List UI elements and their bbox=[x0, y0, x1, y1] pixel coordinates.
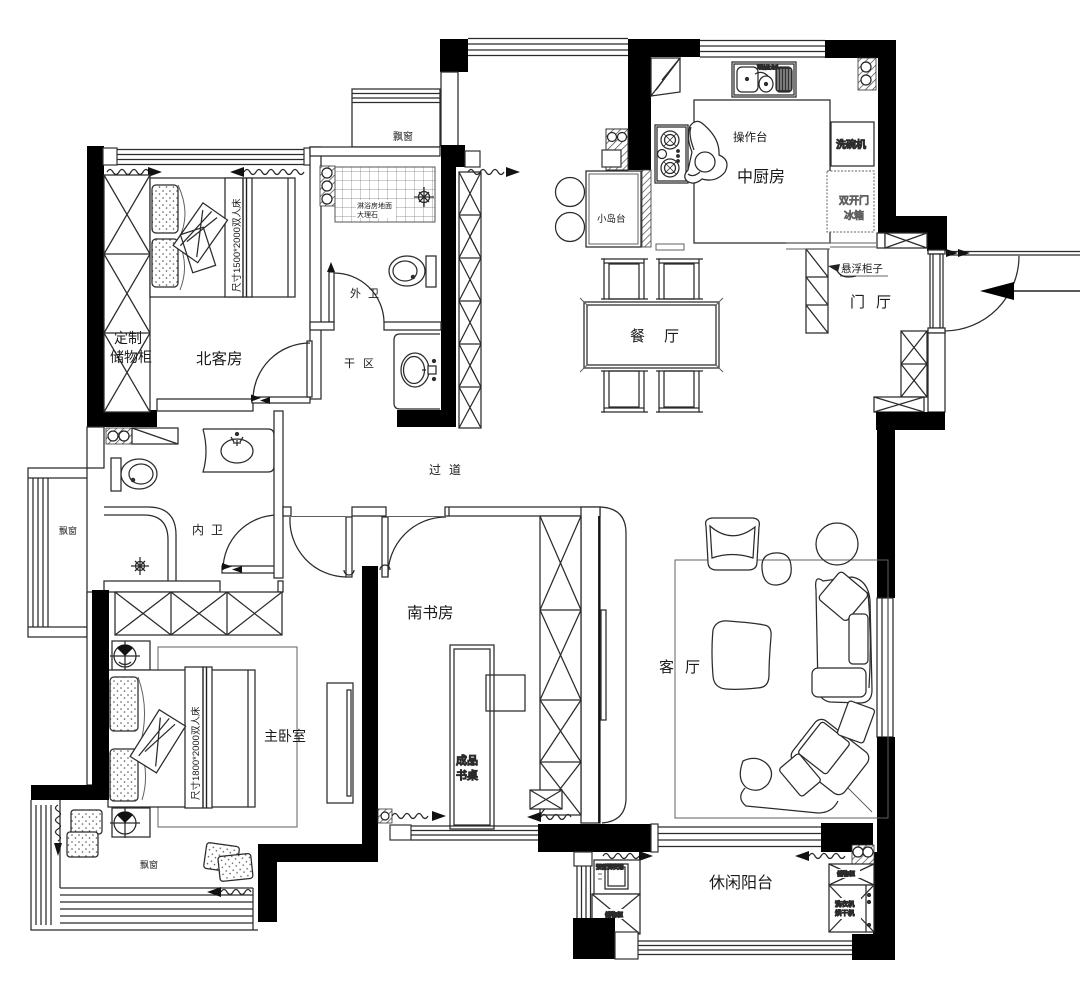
svg-text:储物柜: 储物柜 bbox=[110, 349, 152, 365]
svg-text:悬浮柜子: 悬浮柜子 bbox=[841, 262, 883, 275]
svg-text:尺寸1800*2000双人床: 尺寸1800*2000双人床 bbox=[190, 706, 202, 800]
svg-text:飘窗: 飘窗 bbox=[393, 130, 413, 143]
svg-text:南书房: 南书房 bbox=[407, 604, 454, 622]
svg-text:预留洗衣池: 预留洗衣池 bbox=[596, 863, 624, 871]
svg-text:过道: 过道 bbox=[429, 463, 469, 477]
svg-text:大理石: 大理石 bbox=[357, 210, 378, 219]
svg-text:飘窗: 飘窗 bbox=[59, 525, 77, 536]
svg-text:洗碗机: 洗碗机 bbox=[836, 138, 866, 151]
svg-text:中厨房: 中厨房 bbox=[737, 168, 785, 186]
svg-text:餐厅: 餐厅 bbox=[630, 328, 698, 345]
svg-text:小岛台: 小岛台 bbox=[597, 213, 626, 225]
svg-text:淋浴房地面: 淋浴房地面 bbox=[357, 201, 392, 210]
svg-text:北客房: 北客房 bbox=[196, 350, 243, 368]
svg-text:干区: 干区 bbox=[344, 358, 382, 370]
svg-text:休闲阳台: 休闲阳台 bbox=[709, 874, 773, 892]
svg-text:书桌: 书桌 bbox=[456, 769, 478, 782]
svg-text:外卫: 外卫 bbox=[350, 287, 386, 300]
svg-text:客厅: 客厅 bbox=[659, 659, 711, 676]
svg-text:洗衣机: 洗衣机 bbox=[835, 899, 855, 908]
svg-text:烘干机: 烘干机 bbox=[835, 908, 855, 917]
svg-text:操作台: 操作台 bbox=[733, 130, 768, 144]
svg-text:可抽拉龙头: 可抽拉龙头 bbox=[757, 64, 780, 71]
svg-text:定制: 定制 bbox=[114, 330, 142, 346]
svg-text:双开门: 双开门 bbox=[839, 194, 869, 207]
svg-text:尺寸1500*2000双人床: 尺寸1500*2000双人床 bbox=[231, 198, 243, 292]
svg-text:储物柜: 储物柜 bbox=[837, 870, 855, 878]
svg-text:飘窗: 飘窗 bbox=[140, 859, 158, 870]
svg-text:储物柜: 储物柜 bbox=[605, 911, 623, 919]
svg-text:内卫: 内卫 bbox=[192, 523, 230, 537]
svg-text:门厅: 门厅 bbox=[850, 294, 902, 311]
svg-text:主卧室: 主卧室 bbox=[264, 728, 306, 744]
svg-text:成品: 成品 bbox=[456, 754, 478, 767]
svg-text:冰箱: 冰箱 bbox=[844, 209, 864, 222]
